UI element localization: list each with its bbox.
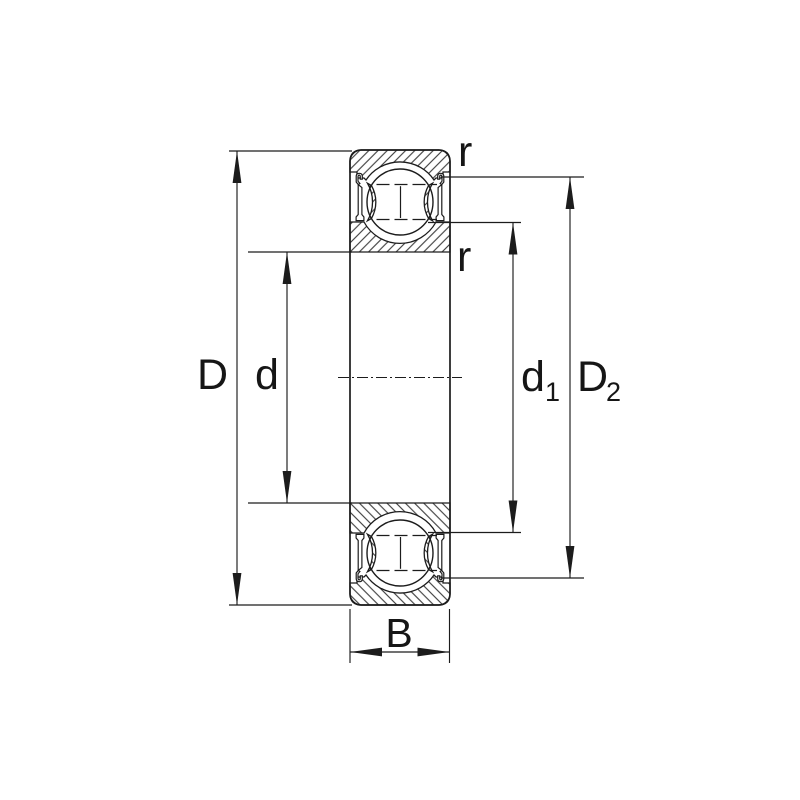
arrowhead-down — [566, 546, 575, 578]
label-d: d — [255, 351, 279, 399]
bearing-lower-section — [350, 503, 450, 605]
arrowhead-down — [509, 501, 518, 533]
arrowhead-down — [233, 573, 242, 605]
shield-body — [356, 185, 364, 221]
arrowhead-up — [509, 223, 518, 255]
arrowhead-down — [283, 471, 292, 503]
bearing-dimension-drawing: D d d 1 D 2 B r r — [0, 0, 800, 800]
arrowhead-up — [566, 177, 575, 209]
arrowhead-right — [418, 648, 450, 657]
label-B: B — [385, 610, 412, 656]
bearing-diagram-svg: D d d 1 D 2 B r r — [0, 0, 800, 800]
label-D2: D — [577, 353, 608, 401]
arrowhead-up — [233, 151, 242, 183]
label-d1-subscript: 1 — [545, 377, 560, 407]
arrowhead-up — [283, 252, 292, 284]
label-D: D — [197, 351, 228, 399]
bearing-upper-section — [350, 150, 450, 252]
label-r-upper: r — [458, 128, 472, 176]
shield-hook — [356, 173, 362, 184]
label-r-lower: r — [457, 233, 471, 281]
label-D2-subscript: 2 — [606, 377, 621, 407]
bearing-body — [338, 150, 462, 605]
dimension-B: B — [350, 609, 450, 663]
dimension-d: d — [248, 252, 352, 503]
arrowhead-left — [350, 648, 382, 657]
label-d1: d — [521, 353, 545, 401]
